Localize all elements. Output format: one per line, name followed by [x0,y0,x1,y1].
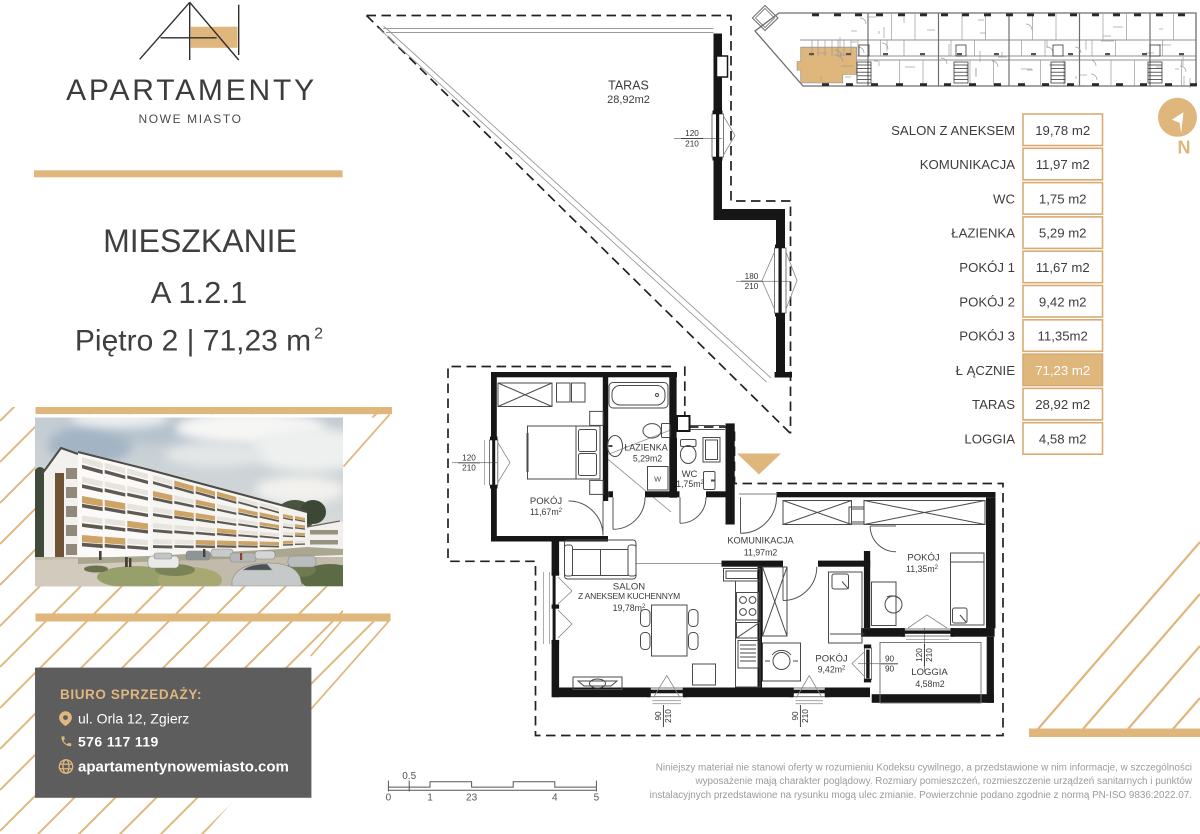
svg-text:90: 90 [791,711,800,721]
svg-text:instalacyjnych przedstawione n: instalacyjnych przedstawione na rysunku … [650,790,1192,801]
svg-text:TARAS: TARAS [608,79,649,93]
svg-text:210: 210 [462,464,476,473]
svg-text:210: 210 [685,139,699,148]
svg-text:KOMUNIKACJA: KOMUNIKACJA [920,157,1015,172]
svg-text:210: 210 [745,282,759,291]
svg-text:0.5: 0.5 [402,771,416,782]
svg-text:apartamentynowemiasto.com: apartamentynowemiasto.com [78,759,289,776]
svg-text:Niniejszy materiał nie stanowi: Niniejszy materiał nie stanowi oferty w … [656,763,1192,774]
svg-text:19,78 m2: 19,78 m2 [1035,123,1090,138]
svg-text:Ł ĄCZNIE: Ł ĄCZNIE [956,363,1016,378]
svg-text:28,92m2: 28,92m2 [607,94,650,106]
svg-text:1,75m2: 1,75m2 [676,479,704,489]
svg-text:NOWE MIASTO: NOWE MIASTO [138,112,242,126]
svg-text:POKÓJ 1: POKÓJ 1 [959,260,1015,275]
svg-text:wyposażenie mają charakter pog: wyposażenie mają charakter poglądowy. Ro… [694,776,1192,787]
svg-text:180: 180 [745,272,759,281]
svg-text:0: 0 [386,793,392,804]
svg-text:11,67 m2: 11,67 m2 [1036,260,1090,275]
svg-text:5,29 m2: 5,29 m2 [1039,226,1087,241]
svg-text:90: 90 [885,654,895,663]
svg-text:WC: WC [993,191,1015,206]
svg-text:Piętro 2 | 71,23 m2: Piętro 2 | 71,23 m2 [75,324,323,357]
svg-text:SALON Z ANEKSEM: SALON Z ANEKSEM [891,123,1015,138]
svg-text:90: 90 [654,711,663,721]
svg-text:POKÓJ: POKÓJ [815,654,847,665]
svg-text:POKÓJ 2: POKÓJ 2 [959,294,1015,309]
svg-text:4,58m2: 4,58m2 [915,679,944,689]
svg-text:POKÓJ: POKÓJ [907,553,939,564]
svg-text:APARTAMENTY: APARTAMENTY [66,74,317,107]
svg-text:11,35m2: 11,35m2 [1038,329,1088,344]
svg-text:ul. Orla 12, Zgierz: ul. Orla 12, Zgierz [78,711,189,727]
svg-text:210: 210 [664,709,673,723]
svg-text:Z ANEKSEM KUCHENNYM: Z ANEKSEM KUCHENNYM [578,591,680,601]
svg-text:ŁAZIENKA: ŁAZIENKA [624,443,668,453]
svg-text:ŁAZIENKA: ŁAZIENKA [951,226,1015,241]
svg-text:LOGGIA: LOGGIA [964,432,1015,447]
svg-text:210: 210 [801,709,810,723]
svg-text:W: W [654,475,662,484]
svg-text:TARAS: TARAS [972,397,1015,412]
svg-text:11,97m2: 11,97m2 [744,548,778,558]
svg-text:BIURO SPRZEDAŻY:: BIURO SPRZEDAŻY: [60,687,202,702]
svg-text:5,29m2: 5,29m2 [633,454,662,464]
svg-text:1: 1 [427,793,433,804]
svg-text:9,42 m2: 9,42 m2 [1039,294,1087,309]
svg-text:19,78m2: 19,78m2 [613,603,646,613]
svg-text:120: 120 [462,453,476,462]
svg-text:120: 120 [915,648,924,662]
svg-text:90: 90 [885,665,895,674]
svg-text:4: 4 [552,793,558,804]
svg-text:1,75 m2: 1,75 m2 [1039,191,1087,206]
svg-text:A 1.2.1: A 1.2.1 [151,275,248,310]
svg-text:11,67m2: 11,67m2 [530,507,563,517]
svg-text:210: 210 [925,648,934,662]
svg-text:71,23 m2: 71,23 m2 [1035,363,1090,378]
svg-text:11,97 m2: 11,97 m2 [1036,157,1090,172]
svg-text:576 117 119: 576 117 119 [78,734,159,750]
svg-text:5: 5 [594,793,600,804]
svg-text:28,92 m2: 28,92 m2 [1035,397,1090,412]
svg-text:MIESZKANIE: MIESZKANIE [103,223,297,259]
svg-text:KOMUNIKACJA: KOMUNIKACJA [727,536,794,546]
svg-text:POKÓJ: POKÓJ [530,496,562,507]
svg-text:11,35m2: 11,35m2 [906,564,939,574]
svg-text:23: 23 [466,793,478,804]
svg-text:LOGGIA: LOGGIA [911,667,948,678]
svg-text:POKÓJ 3: POKÓJ 3 [959,329,1015,344]
svg-text:4,58 m2: 4,58 m2 [1039,432,1087,447]
svg-text:N: N [1178,138,1191,158]
svg-text:120: 120 [685,129,699,138]
svg-text:9,42m2: 9,42m2 [818,665,846,675]
